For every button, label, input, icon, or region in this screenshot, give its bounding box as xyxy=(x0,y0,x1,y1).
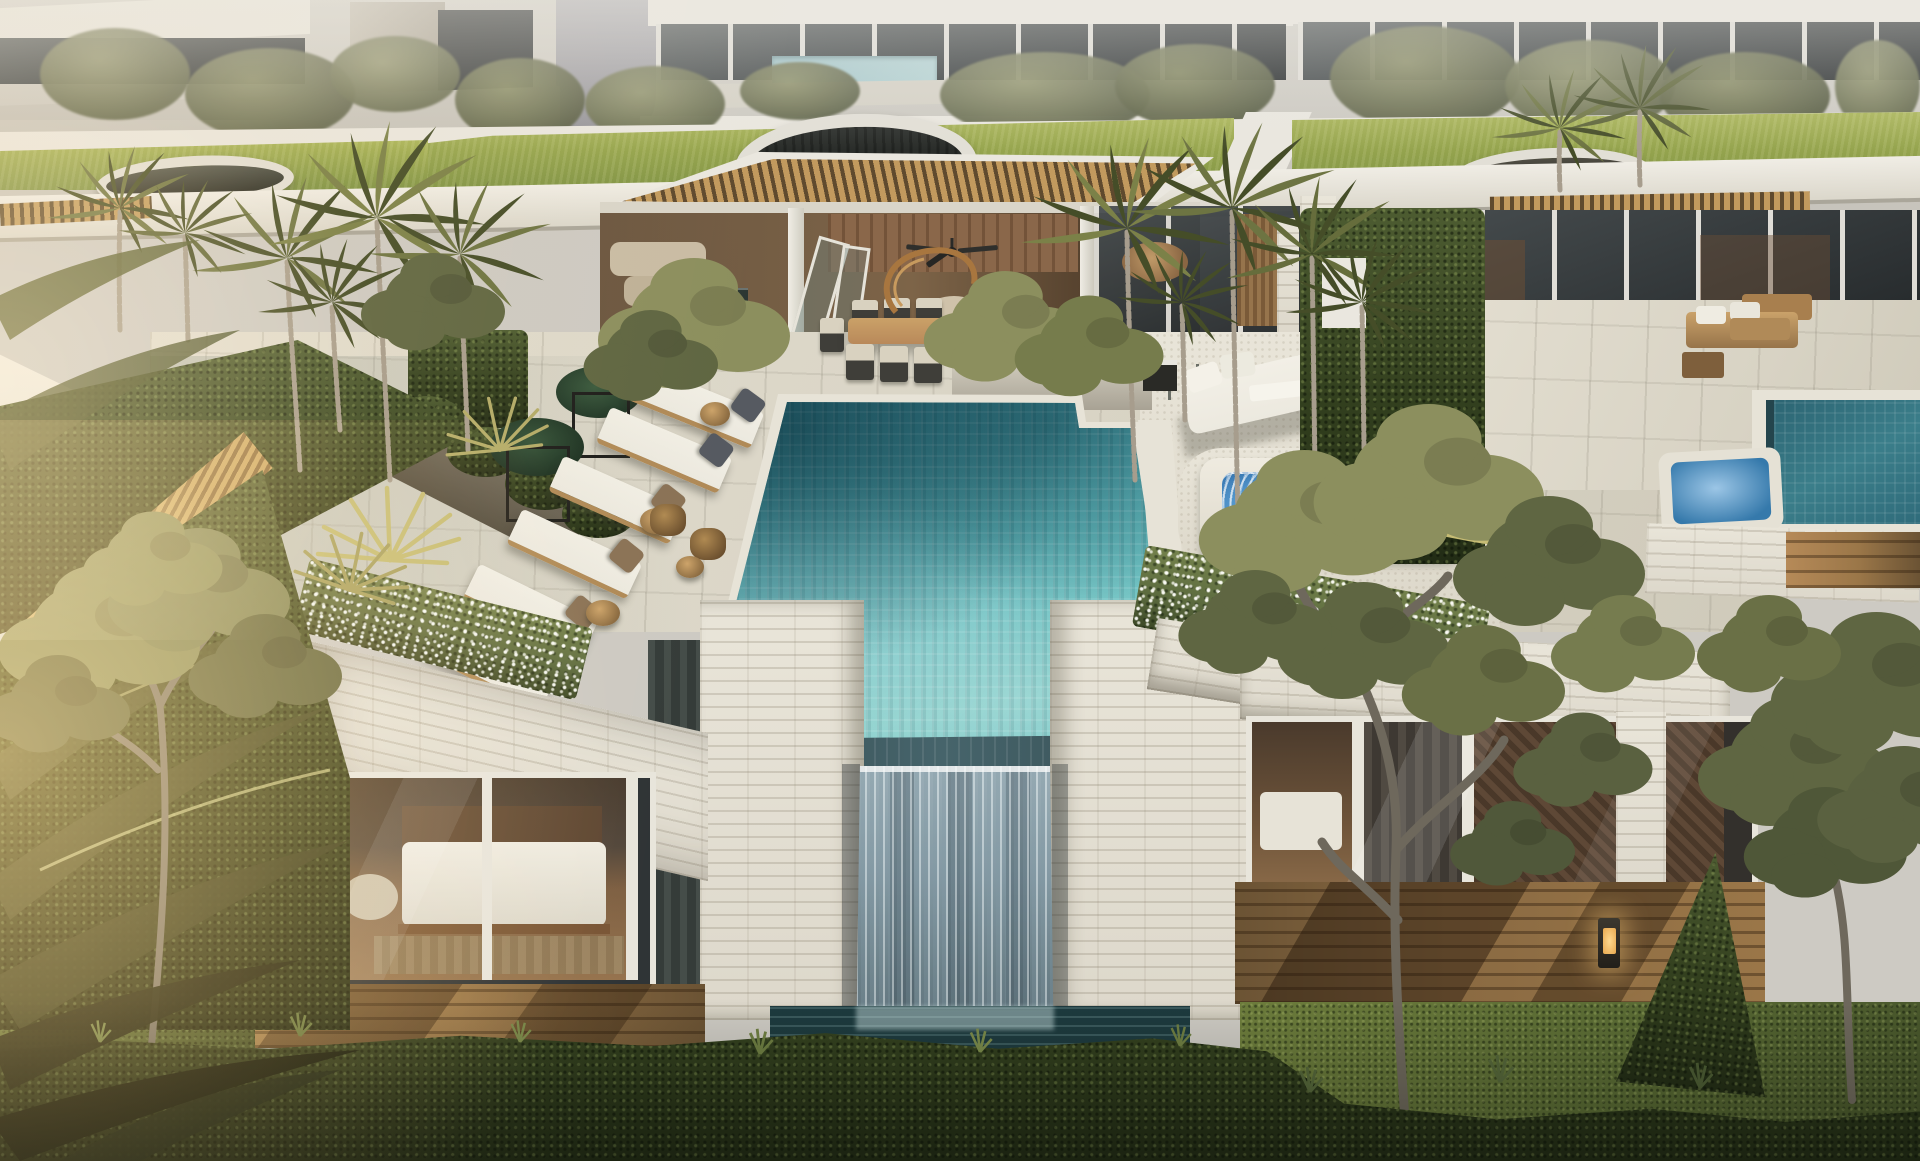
dark-foreground-fronds xyxy=(0,960,360,1161)
foreground-plants xyxy=(0,0,1920,1161)
villa-rendering xyxy=(0,0,1920,1161)
